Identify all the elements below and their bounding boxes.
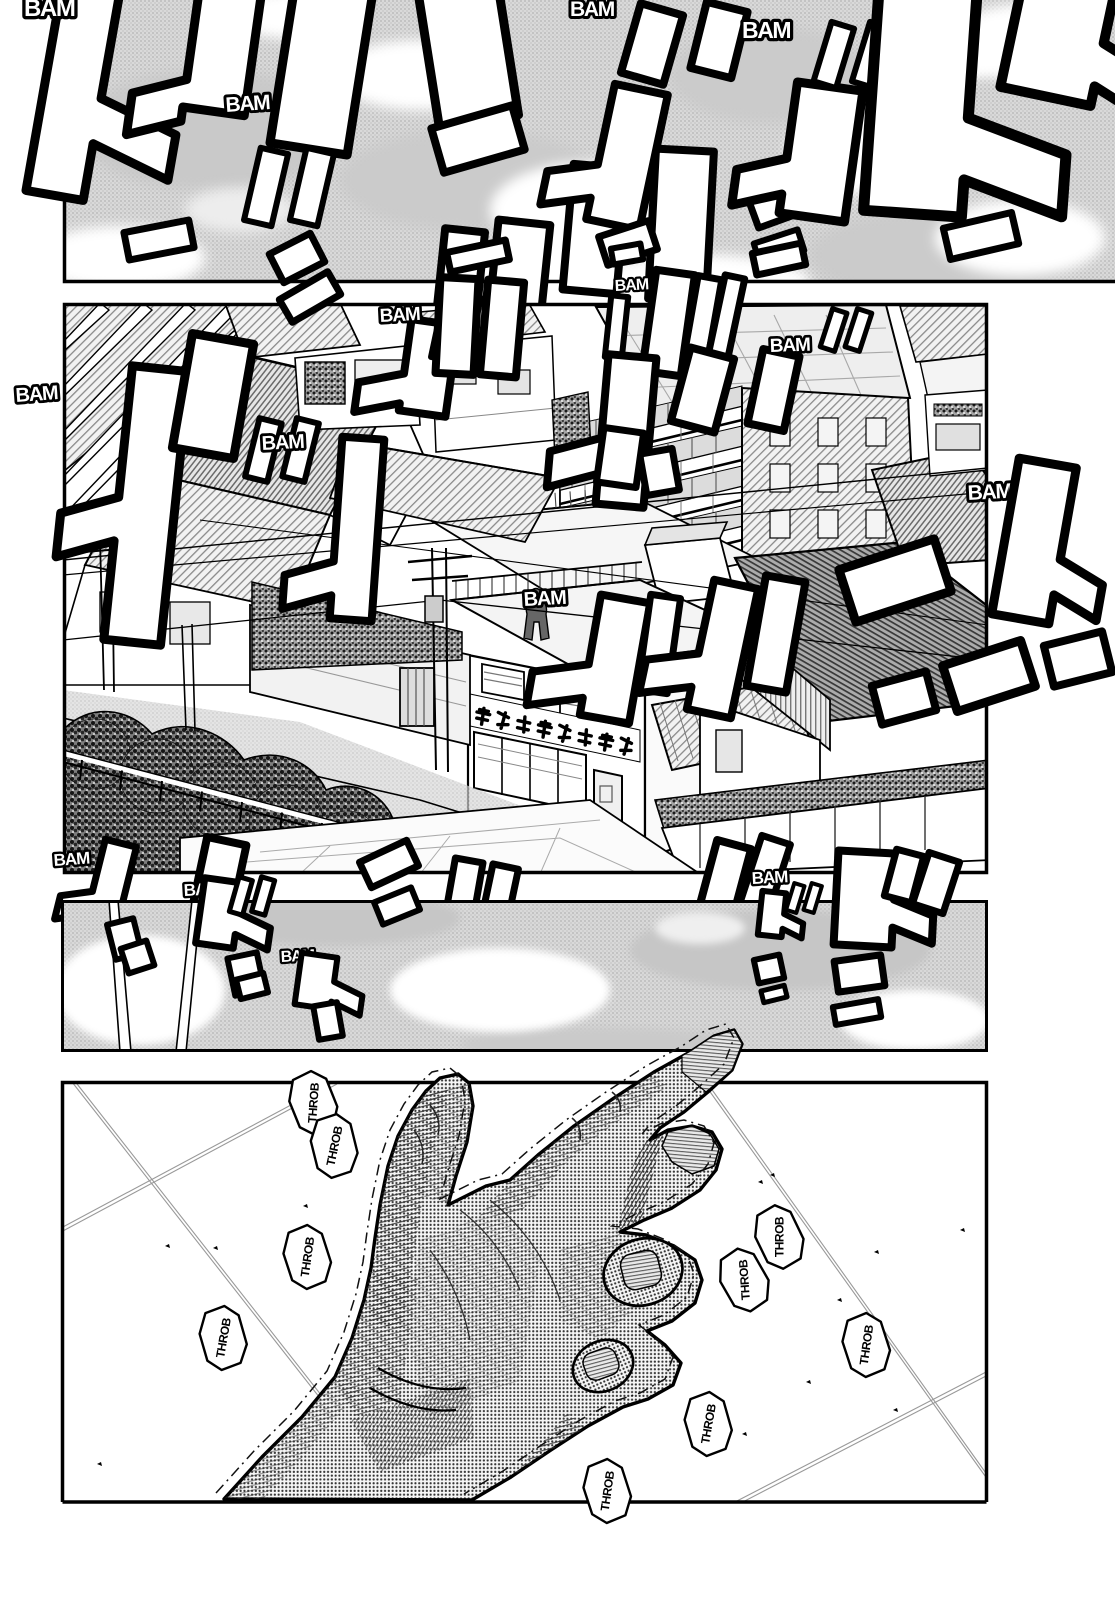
svg-text:BAM: BAM	[614, 276, 649, 295]
svg-text:BAM: BAM	[769, 335, 810, 357]
svg-text:THROB: THROB	[305, 1082, 322, 1124]
svg-text:BAM: BAM	[751, 867, 788, 888]
svg-text:THROB: THROB	[736, 1259, 753, 1301]
svg-text:BAM: BAM	[24, 0, 75, 22]
svg-text:BAM: BAM	[225, 91, 271, 117]
svg-text:BAM: BAM	[967, 480, 1013, 505]
svg-text:BAM: BAM	[15, 382, 59, 407]
svg-text:BAM: BAM	[261, 431, 305, 455]
svg-text:BAM: BAM	[53, 848, 91, 870]
svg-text:BAM: BAM	[742, 17, 790, 43]
svg-text:BAM: BAM	[379, 304, 420, 327]
svg-text:BAM: BAM	[523, 587, 567, 611]
svg-text:THROB: THROB	[773, 1216, 787, 1257]
svg-text:BAM: BAM	[570, 0, 615, 21]
